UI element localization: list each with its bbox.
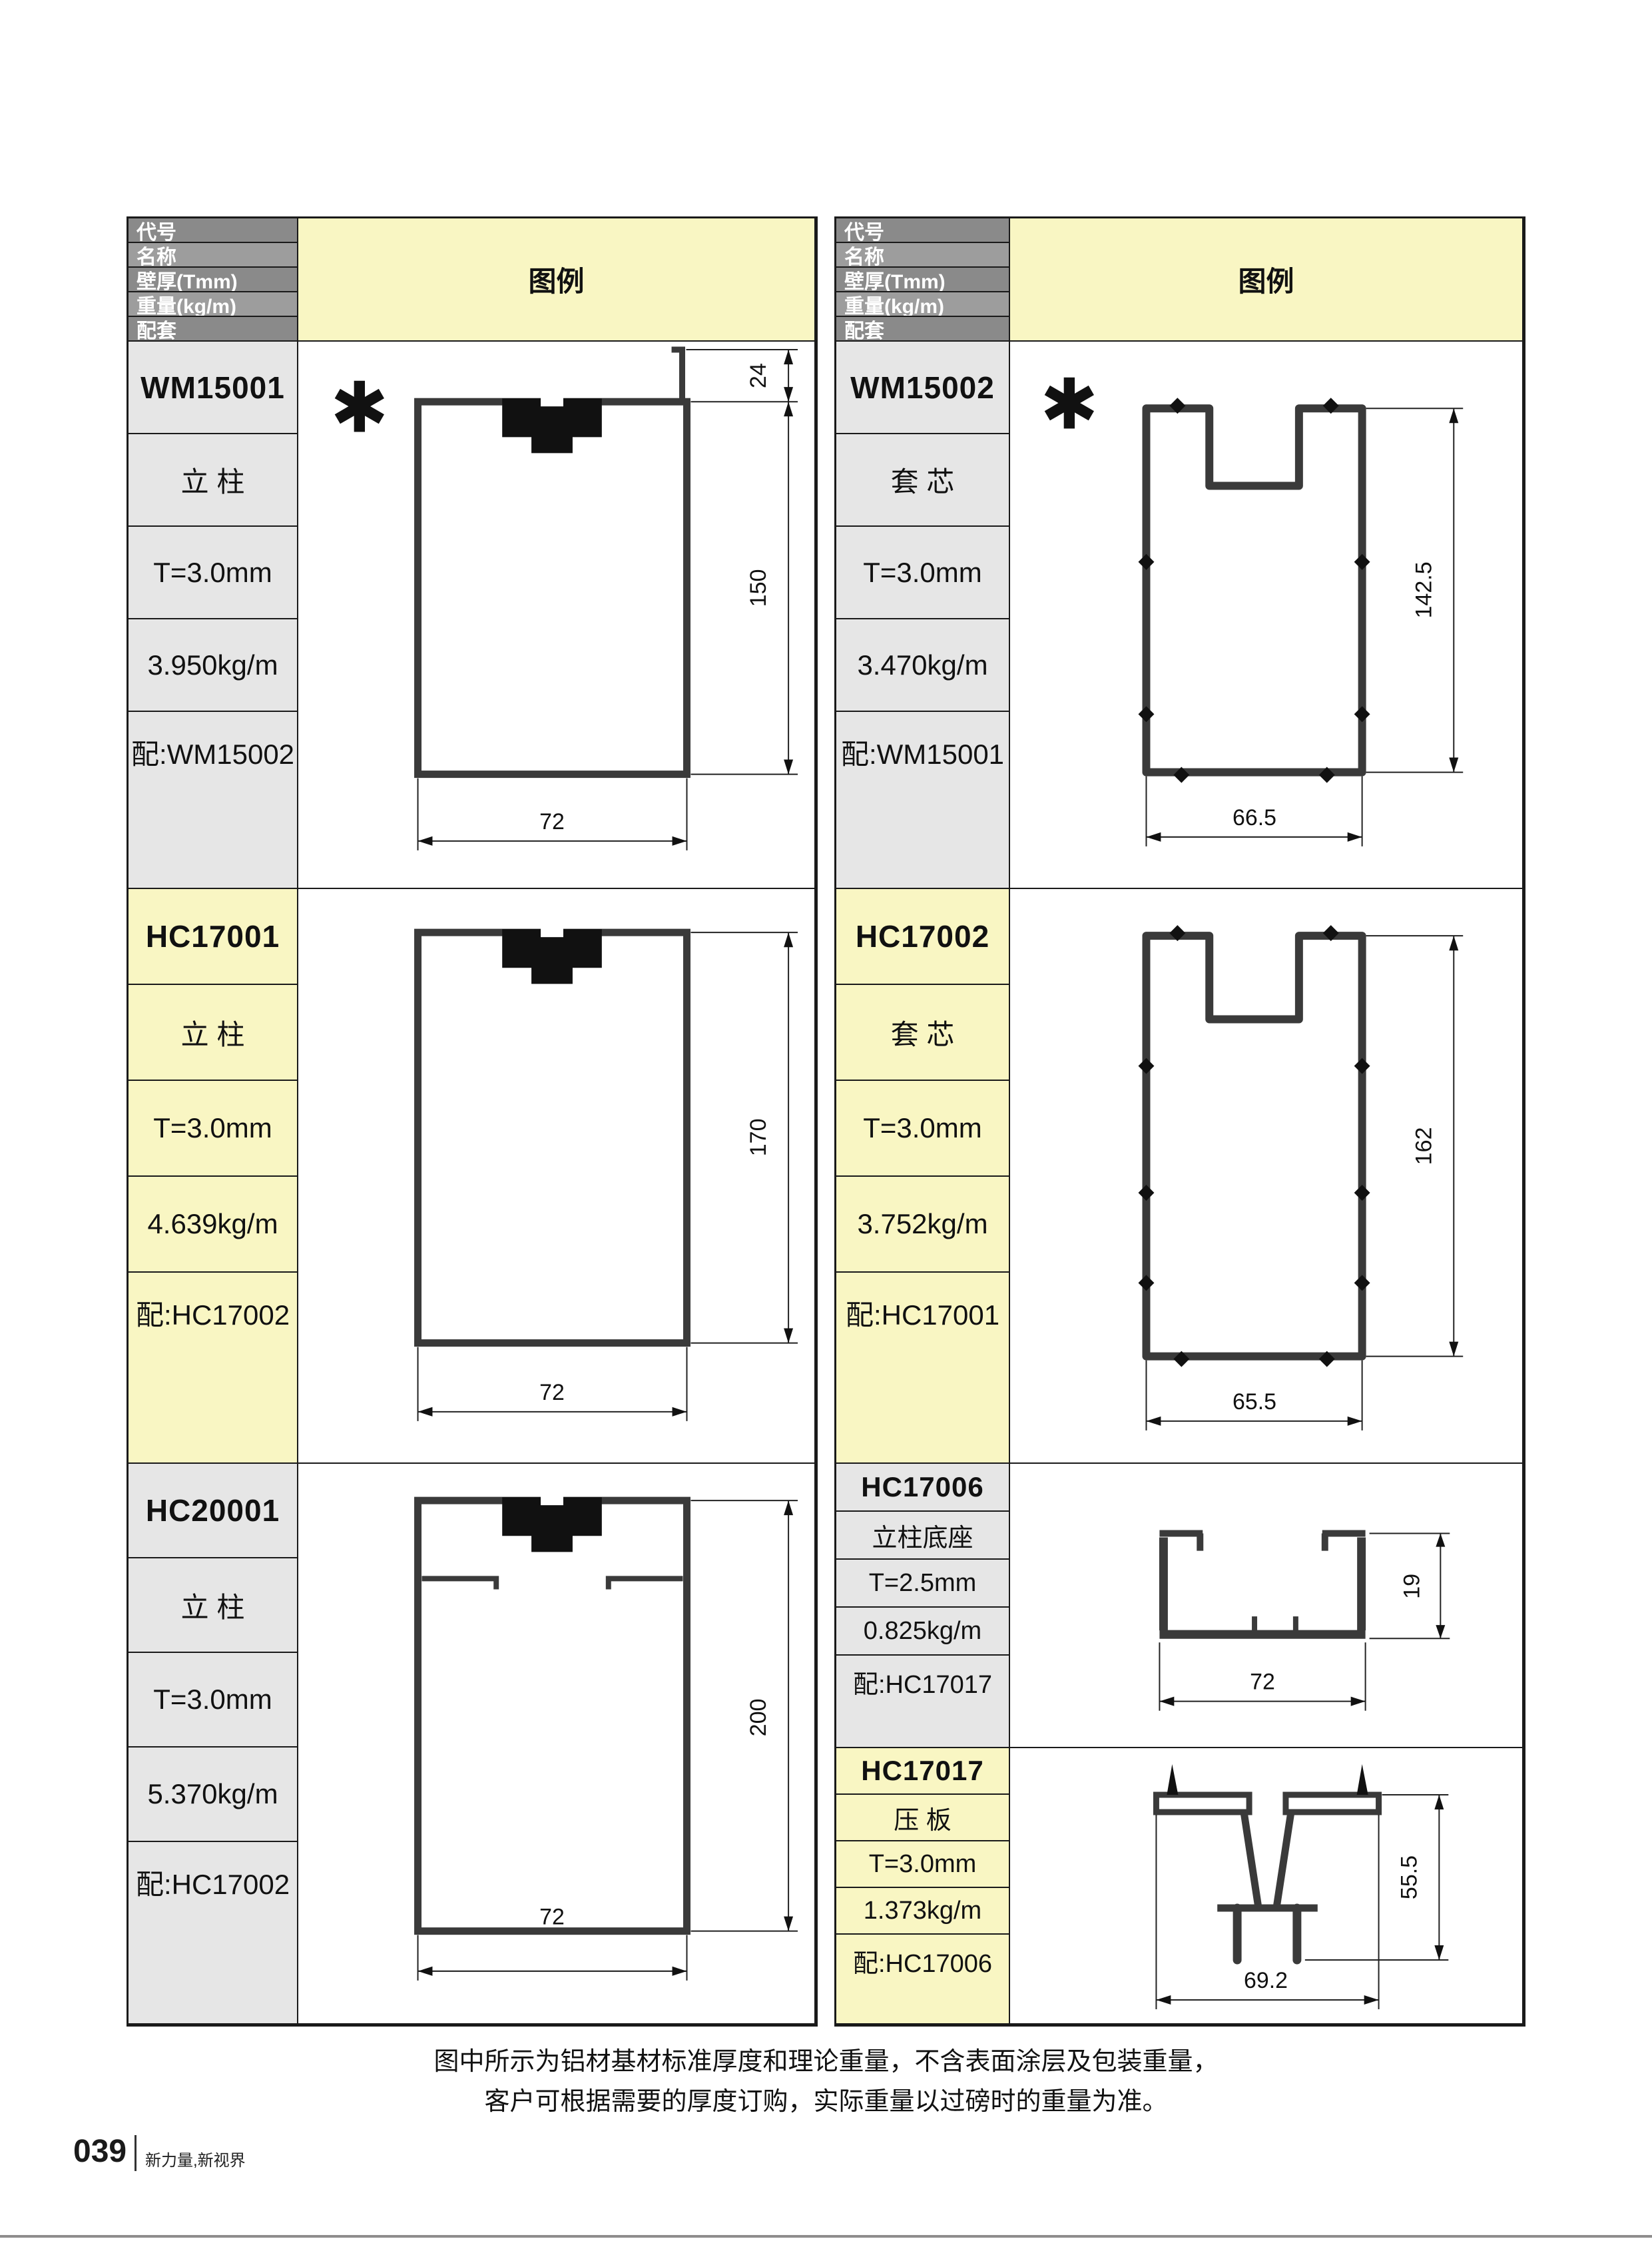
hc17001-code-cell: HC17001: [129, 889, 298, 985]
hc17006-name-cell: 立柱底座: [836, 1512, 1010, 1560]
header-legend-label: 图例: [298, 218, 816, 342]
wm15002-weight-cell: 3.470kg/m: [836, 619, 1010, 712]
hc17002-match-cell: 配:HC17001: [836, 1273, 1010, 1464]
wm15002-name-cell: 套 芯: [836, 434, 1010, 527]
wm15001-name-cell: 立 柱: [129, 434, 298, 527]
hc17001-profile-diagram: 170 72: [298, 889, 816, 1464]
wm15002-dim-height: 142.5: [1411, 561, 1436, 618]
hc17017-weight-cell: 1.373kg/m: [836, 1888, 1010, 1935]
wm15002-thickness-cell: T=3.0mm: [836, 527, 1010, 619]
hc17017-code-cell: HC17017: [836, 1748, 1010, 1795]
hc20001-profile-diagram: 200 72: [298, 1464, 816, 2025]
wm15001-match-cell: 配:WM15002: [129, 712, 298, 889]
catalog-page: 代号 图例 名称 壁厚(Tmm) 重量(kg/m) 配套 WM15001 ✱: [0, 0, 1652, 2241]
note-line-1: 图中所示为铝材基材标准厚度和理论重量，不含表面涂层及包装重量，: [0, 2041, 1652, 2077]
header-legend-label-2: 图例: [1010, 218, 1523, 342]
header-thickness-label-2: 壁厚(Tmm): [836, 268, 1010, 292]
hc17002-dim-height: 162: [1411, 1127, 1436, 1165]
hc17006-match-cell: 配:HC17017: [836, 1656, 1010, 1748]
note-line-2: 客户可根据需要的厚度订购，实际重量以过磅时的重量为准。: [0, 2081, 1652, 2117]
wm15001-code-cell: WM15001: [129, 342, 298, 434]
profile-table-left: 代号 图例 名称 壁厚(Tmm) 重量(kg/m) 配套 WM15001 ✱: [127, 216, 818, 2027]
hc17002-code-cell: HC17002: [836, 889, 1010, 985]
hc17017-dim-width: 69.2: [1244, 1968, 1288, 1993]
hc17002-name-cell: 套 芯: [836, 985, 1010, 1081]
hc17001-dim-height: 170: [746, 1118, 771, 1156]
hc17002-dim-width: 65.5: [1233, 1389, 1276, 1415]
header-code-label: 代号: [129, 218, 298, 243]
footer-divider: [135, 2135, 137, 2171]
hc20001-name-cell: 立 柱: [129, 1558, 298, 1653]
hc17001-dim-width: 72: [539, 1380, 565, 1405]
header-thickness-label: 壁厚(Tmm): [129, 268, 298, 292]
footer-slogan: 新力量,新视界: [145, 2147, 246, 2170]
hc17006-dim-height: 19: [1400, 1574, 1425, 1599]
hc17017-dim-height: 55.5: [1396, 1855, 1422, 1899]
hc17001-thickness-cell: T=3.0mm: [129, 1081, 298, 1177]
hc17017-profile-diagram: 55.5 69.2: [1010, 1748, 1523, 2025]
hc17006-dim-width: 72: [1250, 1669, 1275, 1694]
wm15001-dim-height: 150: [746, 569, 771, 607]
page-bottom-rule: [0, 2235, 1652, 2238]
hc17001-name-cell: 立 柱: [129, 985, 298, 1081]
hc17002-weight-cell: 3.752kg/m: [836, 1177, 1010, 1273]
header-match-label: 配套: [129, 317, 298, 342]
header-name-label-2: 名称: [836, 243, 1010, 268]
hc20001-code-cell: HC20001: [129, 1464, 298, 1558]
header-weight-label: 重量(kg/m): [129, 292, 298, 317]
wm15002-dim-width: 66.5: [1233, 805, 1276, 830]
profile-table-right: 代号 图例 名称 壁厚(Tmm) 重量(kg/m) 配套 WM15002 ✱: [834, 216, 1525, 2027]
wm15001-weight-cell: 3.950kg/m: [129, 619, 298, 712]
hc20001-match-cell: 配:HC17002: [129, 1842, 298, 2025]
hc17006-code-cell: HC17006: [836, 1464, 1010, 1512]
hc20001-dim-height: 200: [746, 1698, 771, 1736]
hc17001-match-cell: 配:HC17002: [129, 1273, 298, 1464]
hc17006-weight-cell: 0.825kg/m: [836, 1608, 1010, 1656]
asterisk-mark: ✱: [330, 369, 389, 447]
wm15001-dim-width: 72: [539, 809, 565, 834]
header-code-label-2: 代号: [836, 218, 1010, 243]
wm15002-profile-diagram: ✱ 142.5 66.5: [1010, 342, 1523, 889]
hc17002-profile-diagram: 162 65.5: [1010, 889, 1523, 1464]
wm15001-thickness-cell: T=3.0mm: [129, 527, 298, 619]
wm15002-match-cell: 配:WM15001: [836, 712, 1010, 889]
hc20001-weight-cell: 5.370kg/m: [129, 1748, 298, 1842]
hc17002-thickness-cell: T=3.0mm: [836, 1081, 1010, 1177]
hc17006-thickness-cell: T=2.5mm: [836, 1560, 1010, 1608]
header-weight-label-2: 重量(kg/m): [836, 292, 1010, 317]
asterisk-mark-2: ✱: [1040, 366, 1099, 444]
hc17017-name-cell: 压 板: [836, 1795, 1010, 1841]
header-name-label: 名称: [129, 243, 298, 268]
hc20001-dim-width: 72: [539, 1905, 565, 1930]
hc17006-profile-diagram: 19 72: [1010, 1464, 1523, 1748]
wm15002-code-cell: WM15002: [836, 342, 1010, 434]
hc17017-match-cell: 配:HC17006: [836, 1935, 1010, 2025]
wm15001-dim-fin: 24: [746, 363, 771, 388]
hc20001-thickness-cell: T=3.0mm: [129, 1653, 298, 1748]
wm15001-profile-diagram: ✱ 24 150 72: [298, 342, 816, 889]
page-number: 039: [73, 2133, 127, 2170]
hc17017-thickness-cell: T=3.0mm: [836, 1841, 1010, 1888]
hc17001-weight-cell: 4.639kg/m: [129, 1177, 298, 1273]
header-match-label-2: 配套: [836, 317, 1010, 342]
